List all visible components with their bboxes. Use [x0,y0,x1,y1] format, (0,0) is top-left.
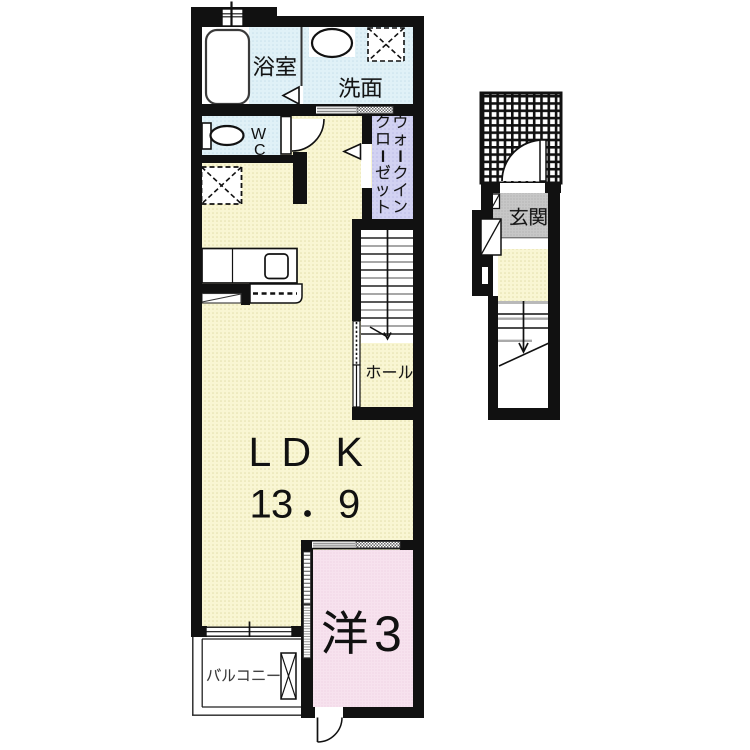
svg-text:D: D [282,429,312,475]
svg-text:3: 3 [374,606,402,662]
svg-text:L: L [249,429,272,475]
svg-text:3: 3 [271,483,293,527]
svg-text:K: K [336,429,363,475]
svg-text:1: 1 [250,483,272,527]
svg-text:W: W [251,126,267,143]
svg-text:9: 9 [338,483,360,527]
